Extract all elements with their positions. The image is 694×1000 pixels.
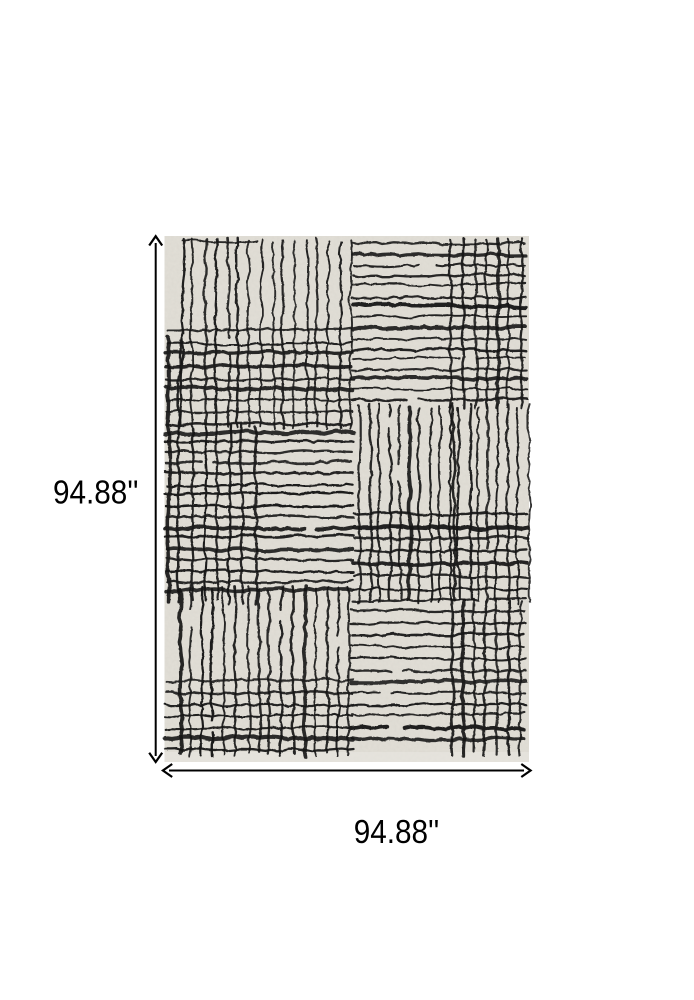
svg-text:94.88'': 94.88''	[53, 474, 139, 511]
svg-text:94.88'': 94.88''	[354, 814, 440, 851]
